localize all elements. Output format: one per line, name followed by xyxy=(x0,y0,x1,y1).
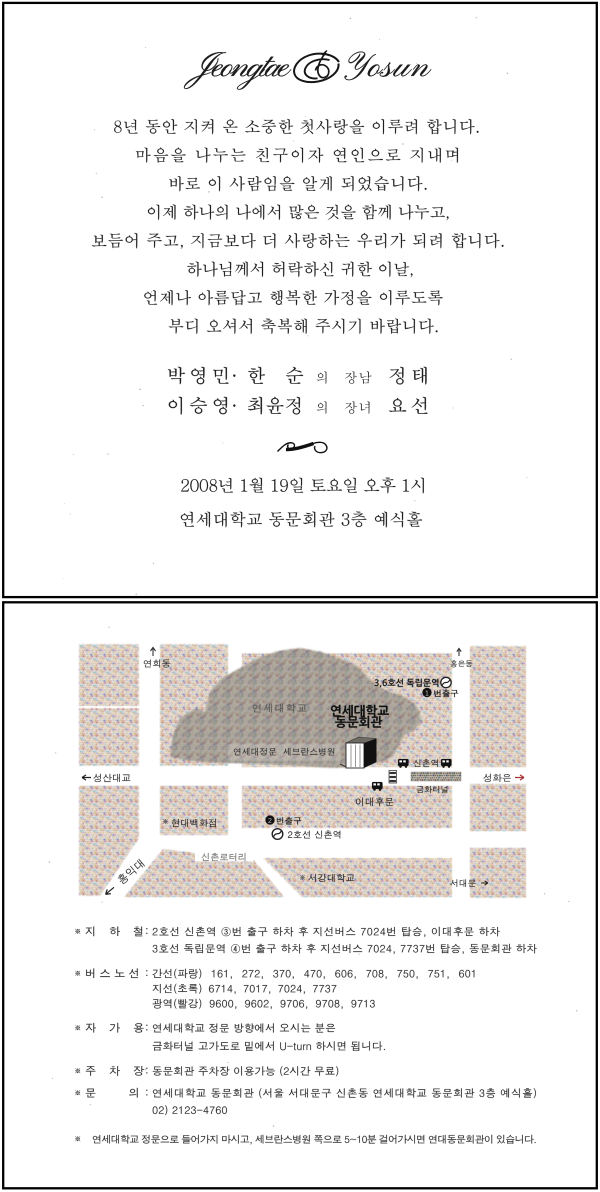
svg-text:2: 2 xyxy=(268,818,272,825)
svg-text:1: 1 xyxy=(425,691,429,698)
